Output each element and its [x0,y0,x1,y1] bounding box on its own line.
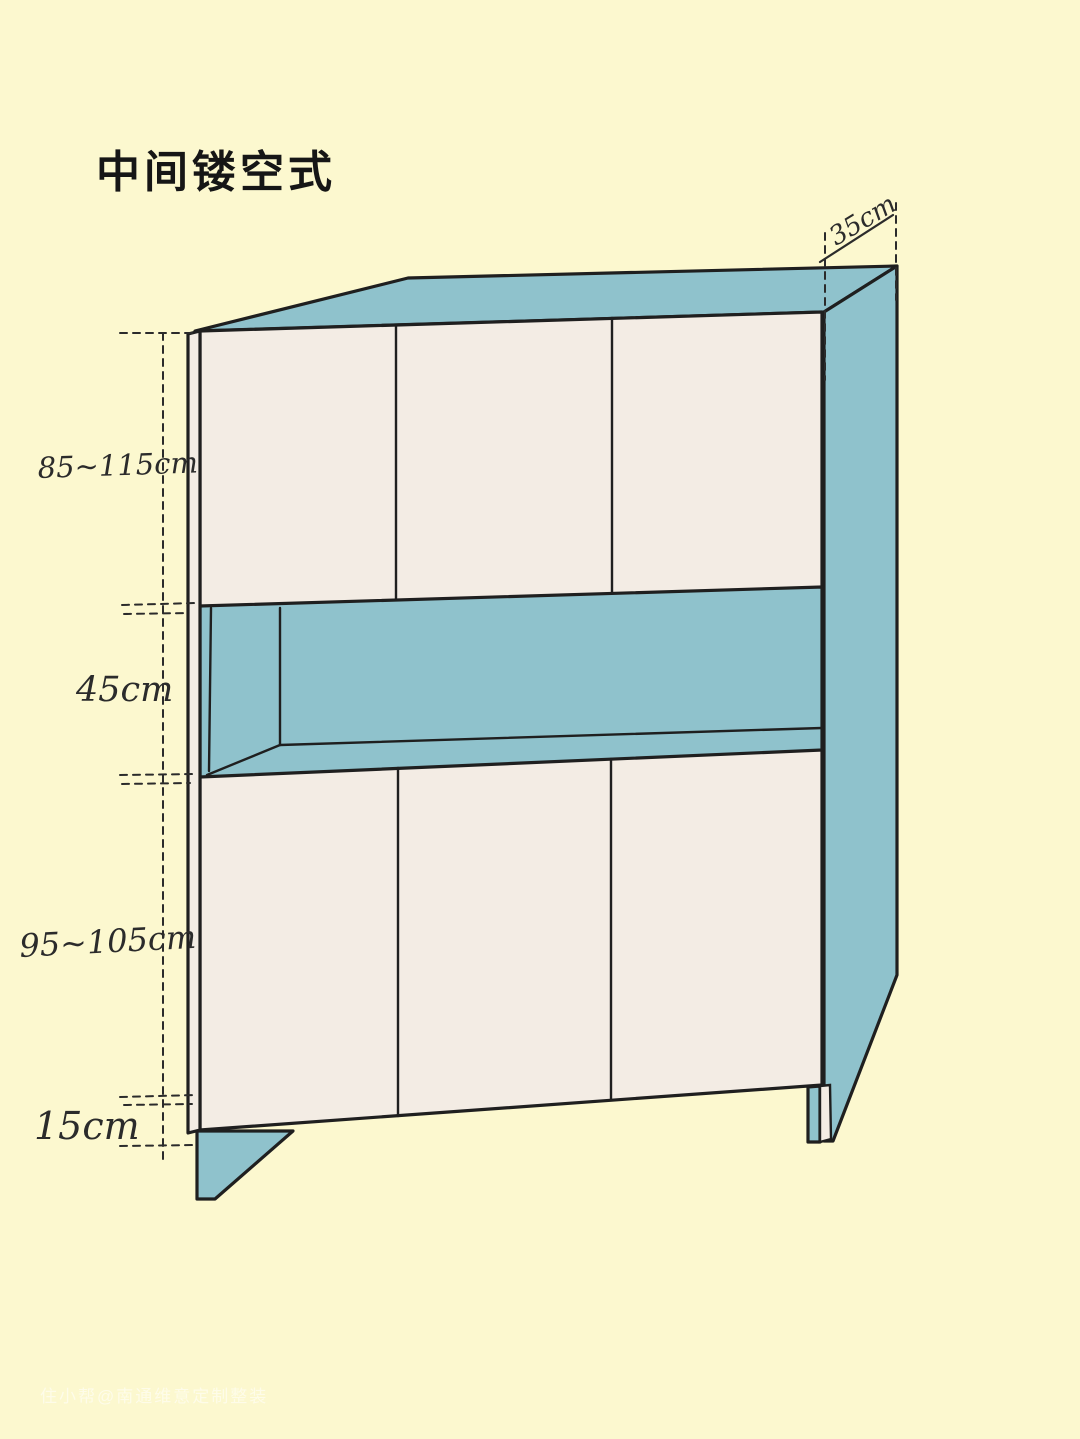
front-left-leg [197,1131,293,1199]
cabinet-diagram: 85~115cm 45cm 95~105cm 15cm 35cm [0,0,1080,1439]
label-depth: 35cm [824,189,901,252]
watermark: 住小帮@南通维意定制整装 [40,1382,268,1407]
hollow-middle-niche [200,587,822,777]
dimension-tick-niche-top-b [124,613,188,614]
dimension-tick-niche-bottom-a [120,774,196,775]
dimension-tick-door-bottom-a [120,1095,196,1097]
right-side-front-edge-strip [820,1085,831,1142]
diagram-page: { "title": "中间镂空式", "watermark": "住小帮@南通… [0,0,1080,1439]
label-top-height: 85~115cm [37,445,198,485]
cabinet-right-side-panel [824,266,897,1141]
dimension-tick-niche-bottom-b [122,783,190,784]
label-bottom-height: 95~105cm [18,918,197,965]
dimension-tick-niche-top-a [122,603,196,605]
label-base-height: 15cm [34,1104,140,1148]
front-right-leg [808,1086,820,1142]
label-middle-height: 45cm [75,670,173,710]
